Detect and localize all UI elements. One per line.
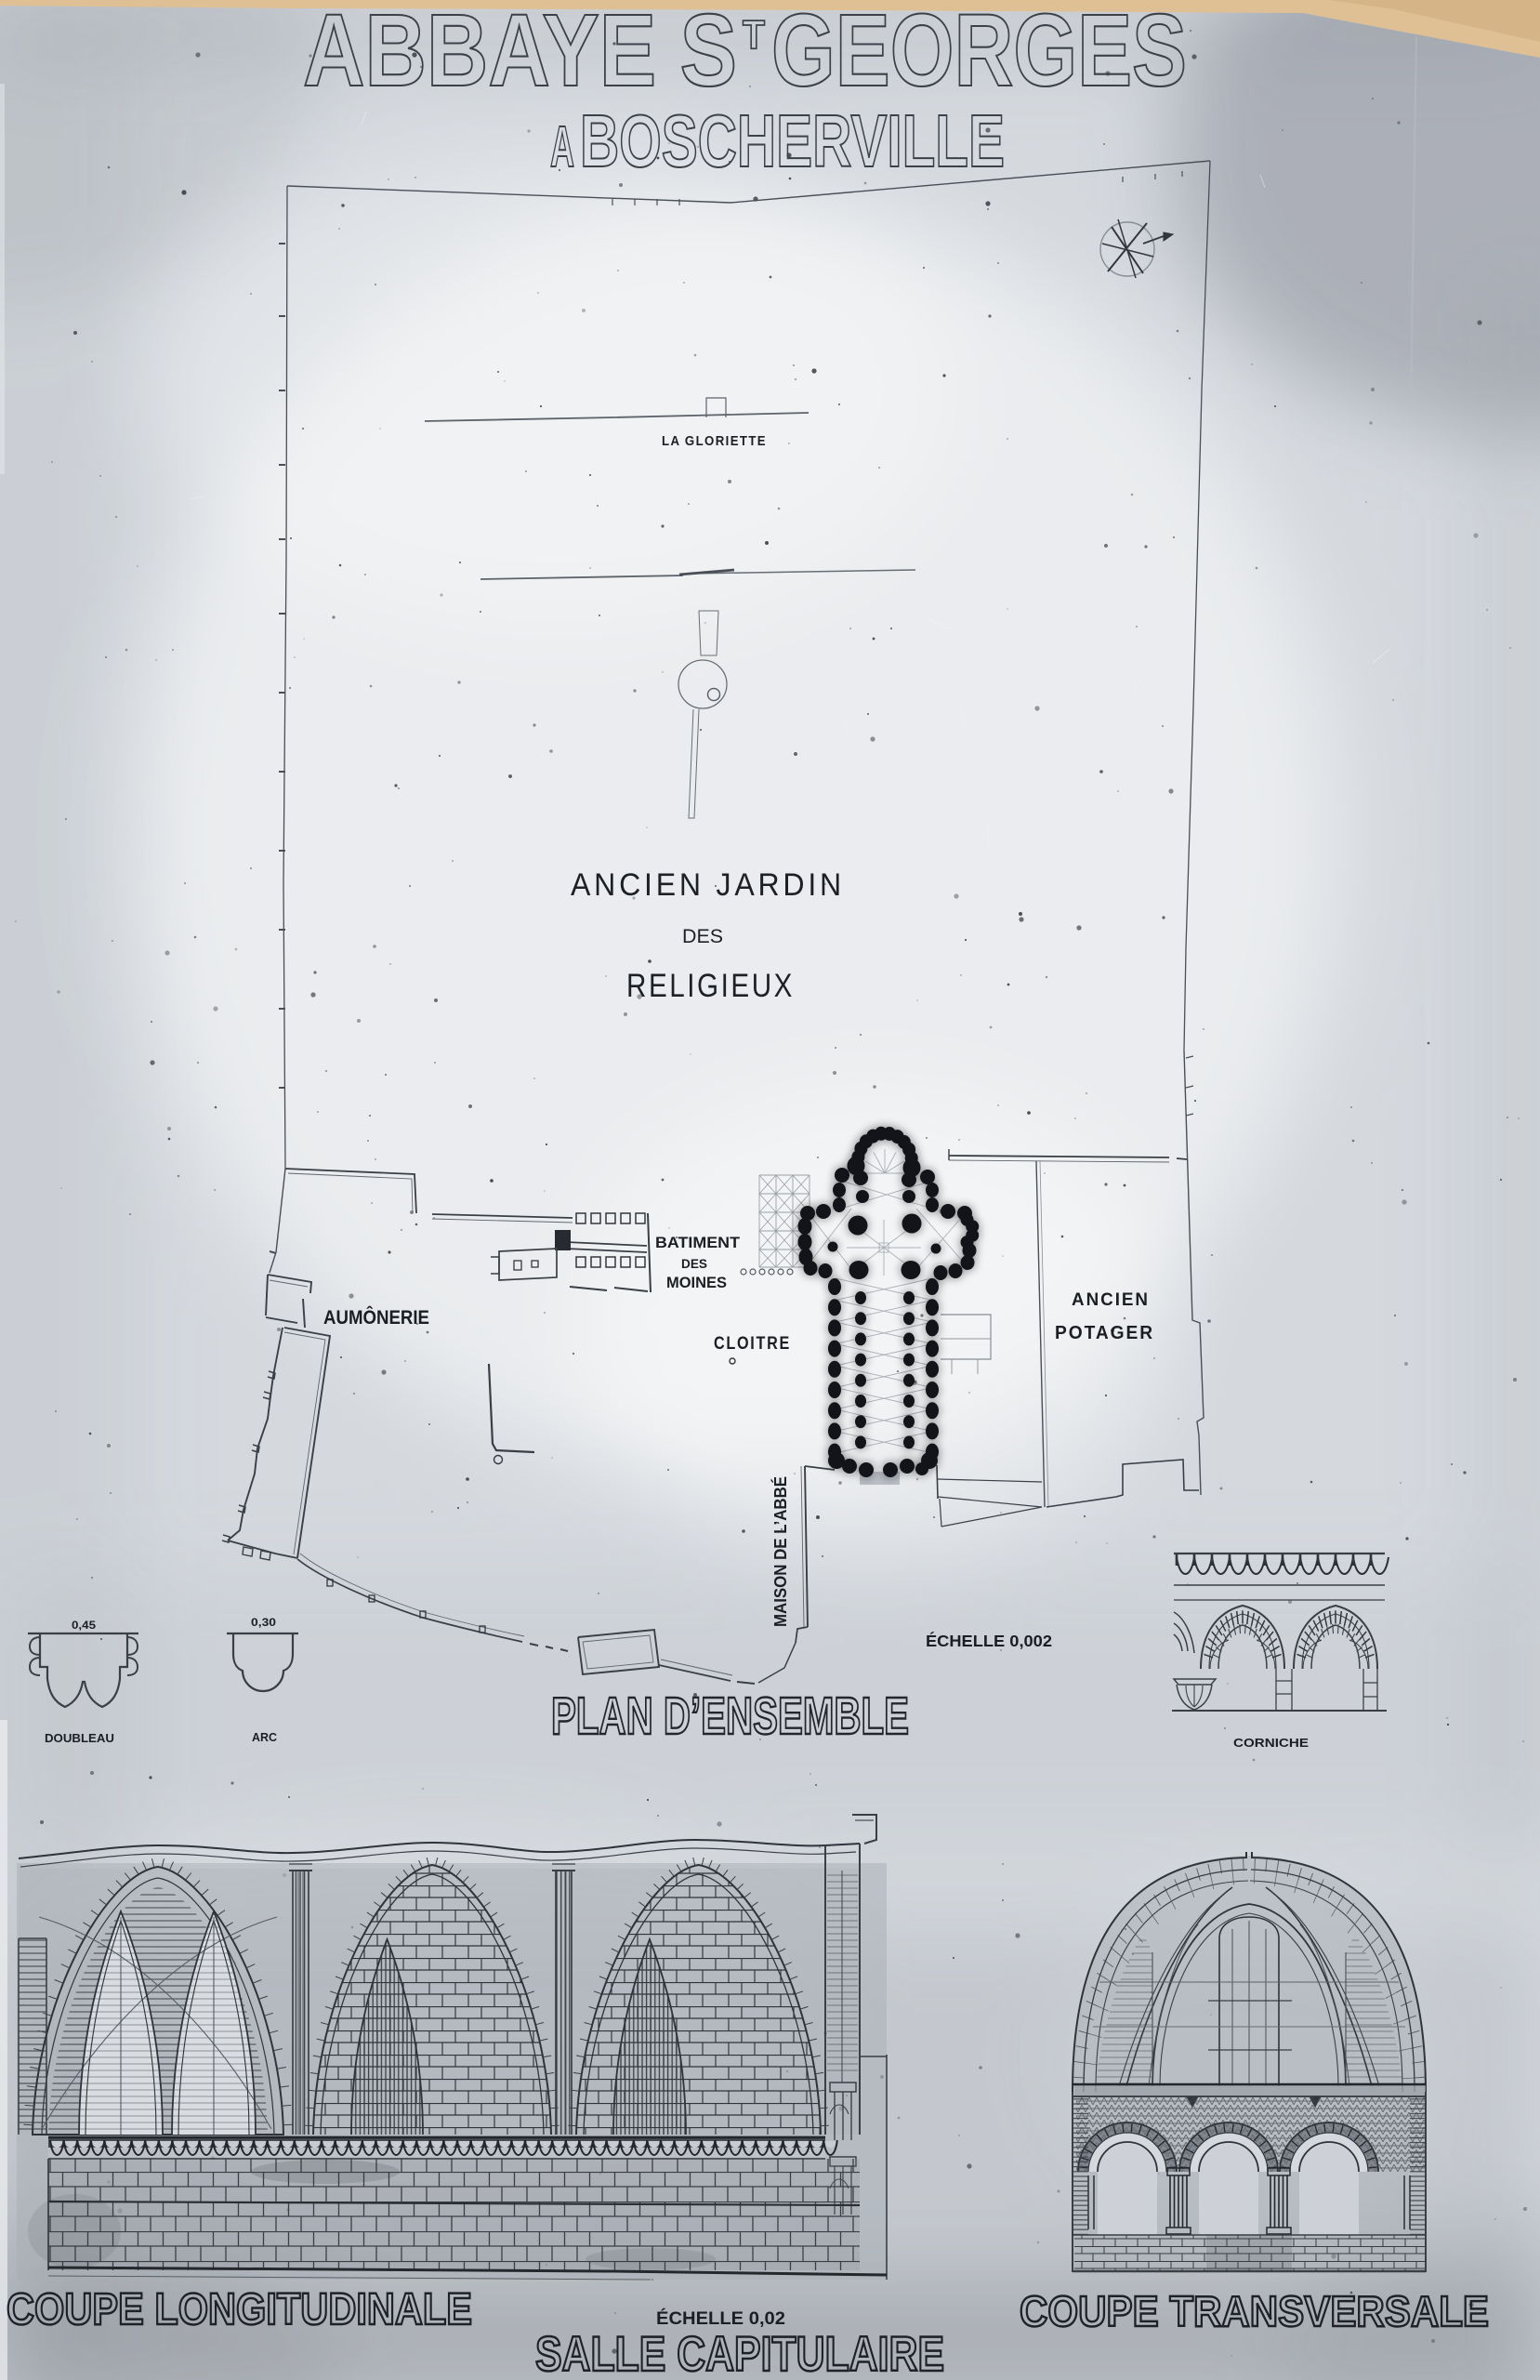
svg-text:LA GLORIETTE: LA GLORIETTE: [662, 434, 767, 449]
svg-text:AUMÔNERIE: AUMÔNERIE: [323, 1306, 429, 1329]
svg-text:ARC: ARC: [252, 1731, 277, 1744]
svg-text:0,45: 0,45: [72, 1620, 97, 1632]
svg-text:MAISON DE L’ABBÉ: MAISON DE L’ABBÉ: [770, 1476, 790, 1627]
svg-text:A: A: [550, 115, 574, 179]
svg-text:COUPE LONGITUDINALE: COUPE LONGITUDINALE: [7, 2285, 472, 2334]
svg-text:POTAGER: POTAGER: [1055, 1323, 1154, 1343]
svg-text:0,30: 0,30: [251, 1618, 276, 1629]
svg-text:SALLE CAPITULAIRE: SALLE CAPITULAIRE: [535, 2327, 944, 2380]
svg-text:BATIMENT: BATIMENT: [655, 1234, 741, 1251]
svg-text:DOUBLEAU: DOUBLEAU: [45, 1732, 114, 1745]
svg-text:ABBAYE S: ABBAYE S: [303, 0, 737, 108]
svg-text:ÉCHELLE 0,002: ÉCHELLE 0,002: [926, 1631, 1052, 1650]
svg-text:CLOITRE: CLOITRE: [714, 1334, 791, 1354]
svg-text:DES: DES: [682, 926, 723, 947]
svg-text:ANCIEN JARDIN: ANCIEN JARDIN: [571, 867, 845, 903]
svg-text:COUPE TRANSVERSALE: COUPE TRANSVERSALE: [1020, 2287, 1489, 2335]
svg-text:PLAN D’ENSEMBLE: PLAN D’ENSEMBLE: [551, 1686, 909, 1746]
svg-text:MOINES: MOINES: [666, 1274, 727, 1291]
svg-text:BOSCHERVILLE: BOSCHERVILLE: [580, 99, 1005, 182]
svg-text:ÉCHELLE 0,02: ÉCHELLE 0,02: [656, 2308, 785, 2329]
svg-text:DES: DES: [681, 1256, 707, 1271]
svg-text:ANCIEN: ANCIEN: [1072, 1290, 1150, 1310]
svg-text:GEORGES: GEORGES: [771, 0, 1187, 108]
svg-text:CORNICHE: CORNICHE: [1233, 1737, 1309, 1750]
svg-text:RELIGIEUX: RELIGIEUX: [626, 968, 795, 1004]
svg-text:T: T: [743, 12, 765, 58]
